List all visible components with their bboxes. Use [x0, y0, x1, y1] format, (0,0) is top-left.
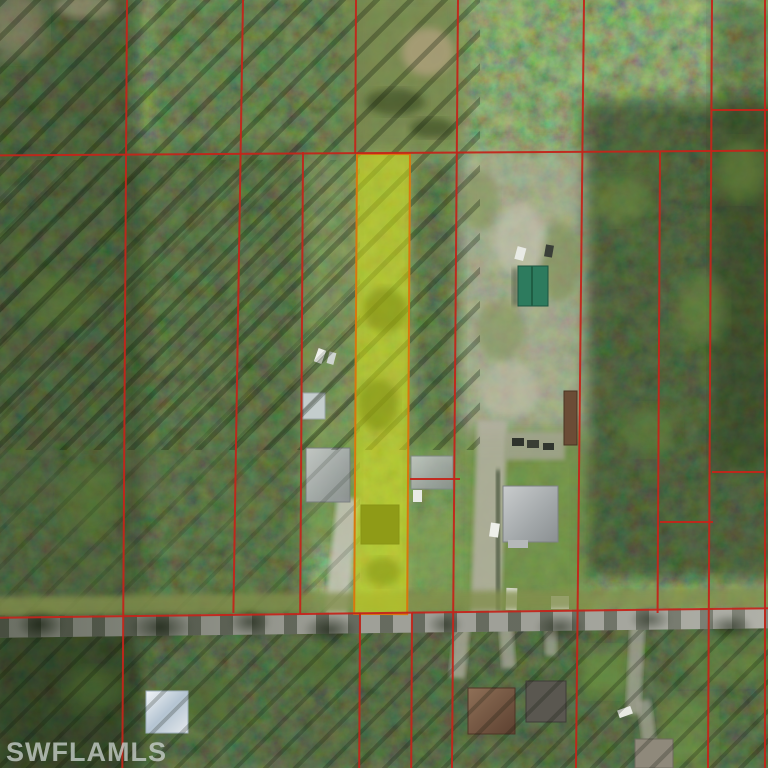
- parcel-boundary-line: [711, 109, 768, 111]
- watermark: SWFLAMLS: [6, 737, 167, 768]
- house-bottom-right: [635, 739, 673, 768]
- shed-west: [303, 393, 325, 419]
- cleared-strip-midleft: [302, 155, 358, 425]
- house-small-parcel: [411, 456, 453, 489]
- parcel-boundary-line: [410, 478, 460, 480]
- house-east-of-parcel: [503, 486, 558, 548]
- shed-brown: [564, 391, 577, 445]
- house-west-of-parcel: [306, 448, 350, 502]
- highlighted-parcel[interactable]: [353, 153, 411, 615]
- building-white-roof: [146, 691, 188, 733]
- parcel-boundary-line: [660, 521, 713, 523]
- barn-green-roof: [512, 266, 548, 306]
- house-dark-roof: [526, 681, 566, 722]
- aerial-map[interactable]: SWFLAMLS: [0, 0, 768, 768]
- parcel-boundary-line: [712, 471, 766, 473]
- house-brown-roof: [468, 688, 515, 734]
- parcel-boundary-line: [764, 0, 766, 768]
- clearing-top-center: [348, 0, 464, 155]
